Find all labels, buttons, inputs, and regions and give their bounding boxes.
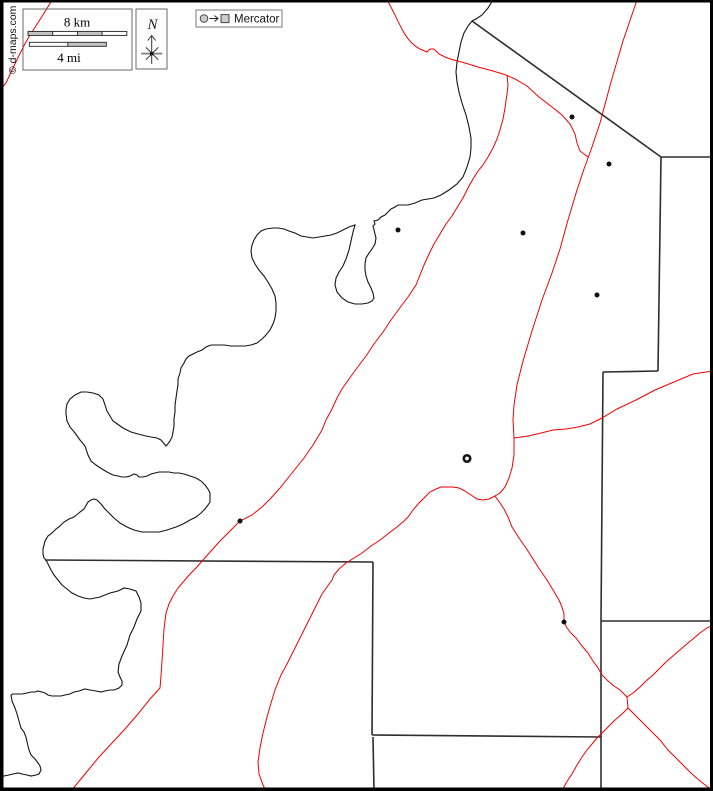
svg-text:© d-maps.com: © d-maps.com bbox=[7, 5, 19, 74]
svg-text:8 km: 8 km bbox=[64, 15, 90, 30]
svg-text:N: N bbox=[146, 17, 158, 33]
svg-text:Mercator: Mercator bbox=[234, 14, 280, 26]
svg-text:4 mi: 4 mi bbox=[57, 50, 81, 65]
